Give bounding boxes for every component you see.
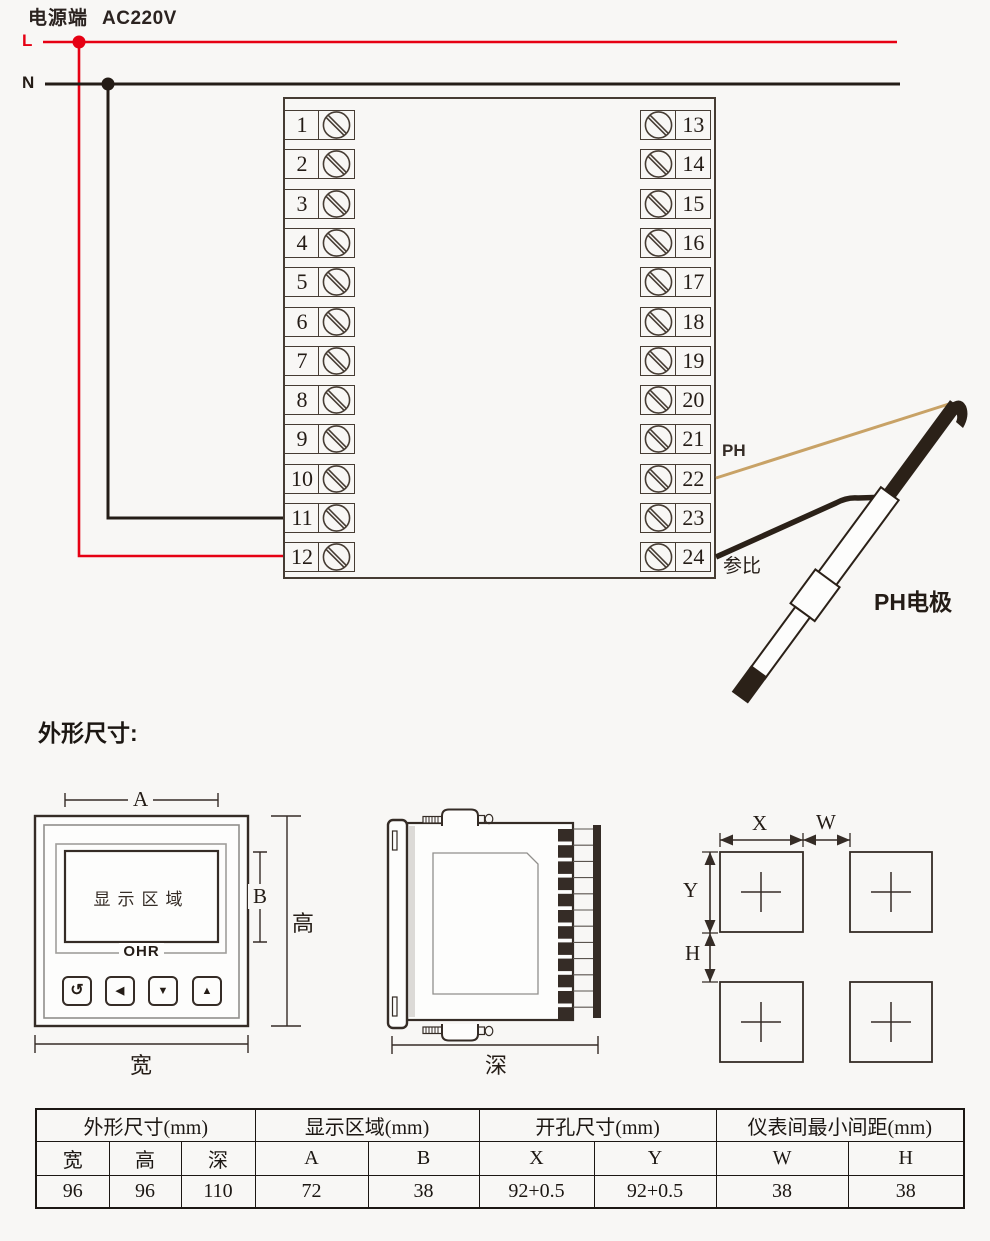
- screw-terminal-icon: [318, 267, 355, 297]
- dim-label-Y: Y: [683, 878, 698, 903]
- dim-label-W: W: [816, 810, 836, 835]
- terminal-number-label: 13: [675, 110, 711, 140]
- terminal-column-right: 131415161718192021222324: [640, 110, 713, 570]
- screw-terminal-icon: [640, 464, 677, 494]
- top-bracket: [423, 810, 493, 827]
- neutral-junction-dot: [102, 78, 115, 91]
- bottom-bracket: [423, 1024, 493, 1041]
- val-H: 38: [848, 1176, 964, 1209]
- neutral-wire: [45, 78, 900, 519]
- group-cutout-dims: 开孔尺寸(mm): [479, 1109, 716, 1142]
- terminal-19: 19: [640, 346, 711, 376]
- group-outline-dims: 外形尺寸(mm): [36, 1109, 255, 1142]
- val-width: 96: [36, 1176, 109, 1209]
- terminal-11: 11: [284, 503, 355, 533]
- val-height: 96: [109, 1176, 181, 1209]
- table-column-header-row: 宽 高 深 A B X Y W H: [36, 1142, 964, 1176]
- val-B: 38: [368, 1176, 479, 1209]
- dim-label-B: B: [248, 884, 272, 909]
- col-width: 宽: [36, 1142, 109, 1176]
- terminal-number-label: 7: [284, 346, 320, 376]
- group-min-spacing: 仪表间最小间距(mm): [716, 1109, 964, 1142]
- down-button: ▼: [148, 976, 178, 1006]
- col-A: A: [255, 1142, 368, 1176]
- cycle-arrow-icon: ↺: [70, 983, 83, 999]
- terminal-number-label: 14: [675, 149, 711, 179]
- page: 电源端AC220V L N 123456789101112 1314151617…: [0, 0, 990, 1241]
- dim-label-A: A: [128, 787, 153, 812]
- terminal-number-label: 17: [675, 267, 711, 297]
- terminal-number-label: 5: [284, 267, 320, 297]
- terminal-17: 17: [640, 267, 711, 297]
- terminal-number-label: 10: [284, 464, 320, 494]
- terminal-16: 16: [640, 228, 711, 258]
- col-H: H: [848, 1142, 964, 1176]
- screw-terminal-icon: [640, 424, 677, 454]
- screw-terminal-icon: [640, 189, 677, 219]
- terminal-6: 6: [284, 307, 355, 337]
- neutral-line-label: N: [22, 73, 34, 93]
- front-view-drawing: [35, 793, 301, 1053]
- terminal-22: 22: [640, 464, 711, 494]
- cutout-crosshairs: [741, 872, 911, 1042]
- screw-terminal-icon: [640, 149, 677, 179]
- terminal-number-label: 6: [284, 307, 320, 337]
- terminal-4: 4: [284, 228, 355, 258]
- terminal-number-label: 16: [675, 228, 711, 258]
- terminal-number-label: 20: [675, 385, 711, 415]
- terminal-number-label: 24: [675, 542, 711, 572]
- electrode-title: PH电极: [874, 583, 952, 617]
- table-group-header-row: 外形尺寸(mm) 显示区域(mm) 开孔尺寸(mm) 仪表间最小间距(mm): [36, 1109, 964, 1142]
- terminal-24: 24: [640, 542, 711, 572]
- screw-terminal-icon: [318, 464, 355, 494]
- power-voltage: AC220V: [102, 8, 177, 29]
- screw-terminal-icon: [318, 307, 355, 337]
- up-button: ▲: [192, 976, 222, 1006]
- terminal-number-label: 22: [675, 464, 711, 494]
- group-display-area: 显示区域(mm): [255, 1109, 479, 1142]
- terminal-2: 2: [284, 149, 355, 179]
- dimensions-section-title: 外形尺寸:: [38, 714, 138, 748]
- electrode-upper: [883, 400, 961, 499]
- screw-terminal-icon: [640, 346, 677, 376]
- terminal-15: 15: [640, 189, 711, 219]
- dim-label-H: H: [685, 941, 700, 966]
- val-W: 38: [716, 1176, 848, 1209]
- terminal-1: 1: [284, 110, 355, 140]
- terminal-20: 20: [640, 385, 711, 415]
- left-triangle-icon: ◀: [116, 986, 124, 997]
- screw-terminal-icon: [640, 267, 677, 297]
- screw-terminal-icon: [318, 228, 355, 258]
- col-W: W: [716, 1142, 848, 1176]
- screw-terminal-icon: [318, 424, 355, 454]
- terminal-number-label: 2: [284, 149, 320, 179]
- dim-label-width: 宽: [130, 1048, 152, 1080]
- reference-wire-label: 参比: [723, 551, 761, 578]
- col-Y: Y: [594, 1142, 716, 1176]
- terminal-number-label: 8: [284, 385, 320, 415]
- col-height: 高: [109, 1142, 181, 1176]
- terminal-3: 3: [284, 189, 355, 219]
- power-terminal-label: 电源端: [28, 8, 88, 29]
- cycle-button: ↺: [62, 976, 92, 1006]
- ph-wire-label: PH: [722, 441, 746, 461]
- brand-logo-text: OHR: [119, 943, 163, 960]
- screw-terminal-icon: [640, 110, 677, 140]
- terminal-9: 9: [284, 424, 355, 454]
- terminal-number-label: 18: [675, 307, 711, 337]
- screw-terminal-icon: [318, 149, 355, 179]
- terminal-number-label: 23: [675, 503, 711, 533]
- val-A: 72: [255, 1176, 368, 1209]
- val-Y: 92+0.5: [594, 1176, 716, 1209]
- screw-terminal-icon: [318, 385, 355, 415]
- screw-terminal-icon: [640, 503, 677, 533]
- terminal-10: 10: [284, 464, 355, 494]
- dimension-table: 外形尺寸(mm) 显示区域(mm) 开孔尺寸(mm) 仪表间最小间距(mm) 宽…: [35, 1108, 965, 1209]
- terminal-23: 23: [640, 503, 711, 533]
- dim-label-X: X: [752, 811, 767, 836]
- terminal-number-label: 3: [284, 189, 320, 219]
- terminal-18: 18: [640, 307, 711, 337]
- terminal-number-label: 1: [284, 110, 320, 140]
- terminal-number-label: 12: [284, 542, 320, 572]
- terminal-number-label: 21: [675, 424, 711, 454]
- left-button: ◀: [105, 976, 135, 1006]
- table-value-row: 96 96 110 72 38 92+0.5 92+0.5 38 38: [36, 1176, 964, 1209]
- up-triangle-icon: ▲: [202, 986, 213, 997]
- val-depth: 110: [181, 1176, 255, 1209]
- terminal-number-label: 11: [284, 503, 320, 533]
- col-B: B: [368, 1142, 479, 1176]
- terminal-5: 5: [284, 267, 355, 297]
- col-X: X: [479, 1142, 594, 1176]
- live-junction-dot: [73, 36, 86, 49]
- screw-terminal-icon: [640, 307, 677, 337]
- electrode-shaft: [750, 607, 810, 679]
- live-line-label: L: [22, 31, 32, 51]
- electrode-body: [817, 487, 899, 587]
- screw-terminal-icon: [318, 110, 355, 140]
- dim-label-height: 高: [292, 906, 314, 938]
- dim-arrowheads: [705, 835, 851, 983]
- col-depth: 深: [181, 1142, 255, 1176]
- terminal-12: 12: [284, 542, 355, 572]
- terminal-number-label: 9: [284, 424, 320, 454]
- side-view-drawing: [388, 810, 601, 1055]
- down-triangle-icon: ▼: [158, 986, 169, 997]
- live-wire: [43, 36, 897, 557]
- terminal-number-label: 15: [675, 189, 711, 219]
- screw-terminal-icon: [318, 189, 355, 219]
- screw-terminal-icon: [318, 346, 355, 376]
- val-X: 92+0.5: [479, 1176, 594, 1209]
- screw-terminal-icon: [640, 542, 677, 572]
- power-label: 电源端AC220V: [28, 3, 177, 30]
- terminal-21: 21: [640, 424, 711, 454]
- dim-label-depth: 深: [485, 1048, 507, 1080]
- display-area-label: 显示区域: [65, 885, 218, 910]
- screw-terminal-icon: [640, 228, 677, 258]
- terminal-14: 14: [640, 149, 711, 179]
- terminal-7: 7: [284, 346, 355, 376]
- terminal-8: 8: [284, 385, 355, 415]
- terminal-number-label: 4: [284, 228, 320, 258]
- screw-terminal-icon: [640, 385, 677, 415]
- brand-logo: OHR: [65, 943, 218, 961]
- terminal-number-label: 19: [675, 346, 711, 376]
- terminal-column-left: 123456789101112: [284, 110, 357, 570]
- screw-terminal-icon: [318, 503, 355, 533]
- screw-terminal-icon: [318, 542, 355, 572]
- terminal-13: 13: [640, 110, 711, 140]
- cutout-view-drawing: [702, 833, 932, 1062]
